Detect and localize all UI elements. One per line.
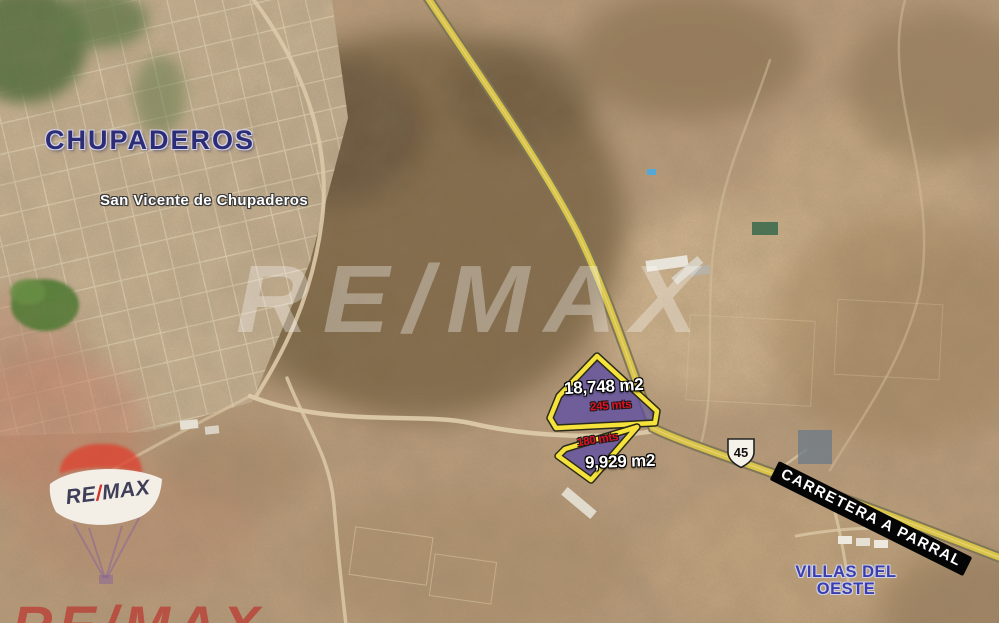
- district-line-1: VILLAS DEL: [791, 564, 901, 581]
- town-sublabel: San Vicente de Chupaderos: [100, 193, 308, 209]
- remax-watermark-bottom: RE/MAX: [12, 597, 266, 623]
- villas-del-oeste-label: VILLAS DEL OESTE: [791, 564, 901, 599]
- pool: [647, 169, 656, 175]
- balloon-brand-re: RE: [64, 483, 97, 510]
- highway-shield-number: 45: [734, 445, 748, 460]
- remax-watermark-center: RE/MAX: [236, 250, 712, 351]
- map-canvas: 45 CHUPADEROS San Vicente de Chupaderos …: [0, 0, 999, 623]
- remax-balloon-logo: RE/MAX: [44, 438, 170, 588]
- balloon-art: [44, 438, 170, 588]
- roadside-compound: [798, 430, 832, 464]
- district-line-2: OESTE: [791, 581, 901, 598]
- town-label: CHUPADEROS: [45, 126, 255, 154]
- balloon-net: [74, 518, 139, 578]
- parcel-2-area-label: 9,929 m2: [585, 452, 656, 472]
